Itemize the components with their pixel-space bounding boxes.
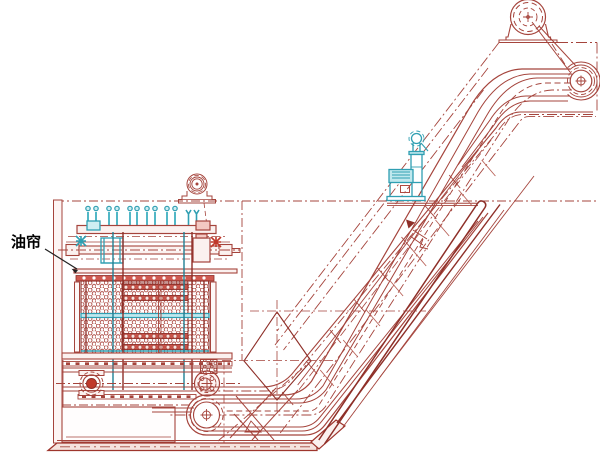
svg-text:油帘: 油帘	[11, 233, 41, 251]
